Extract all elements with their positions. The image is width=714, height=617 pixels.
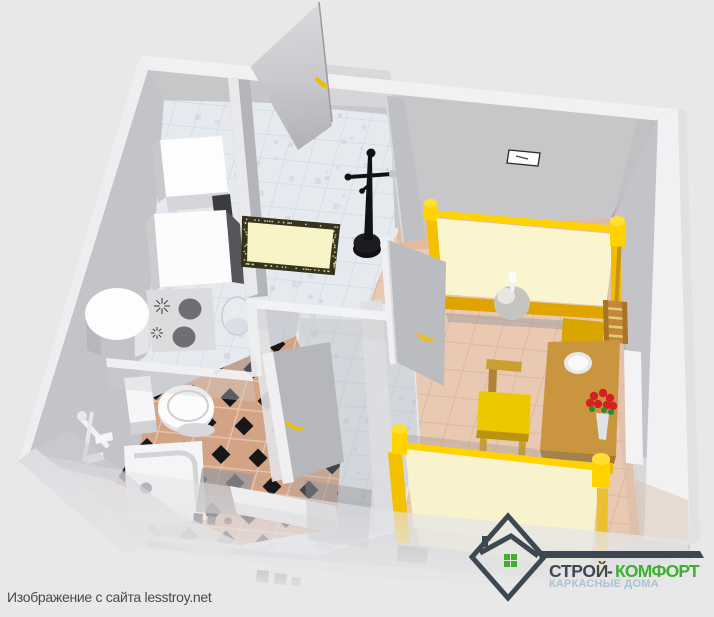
- svg-text:Изображение с сайта lesstroy.n: Изображение с сайта lesstroy.net: [7, 589, 212, 605]
- svg-text:КАРКАСНЫЕ ДОМА: КАРКАСНЫЕ ДОМА: [549, 578, 659, 590]
